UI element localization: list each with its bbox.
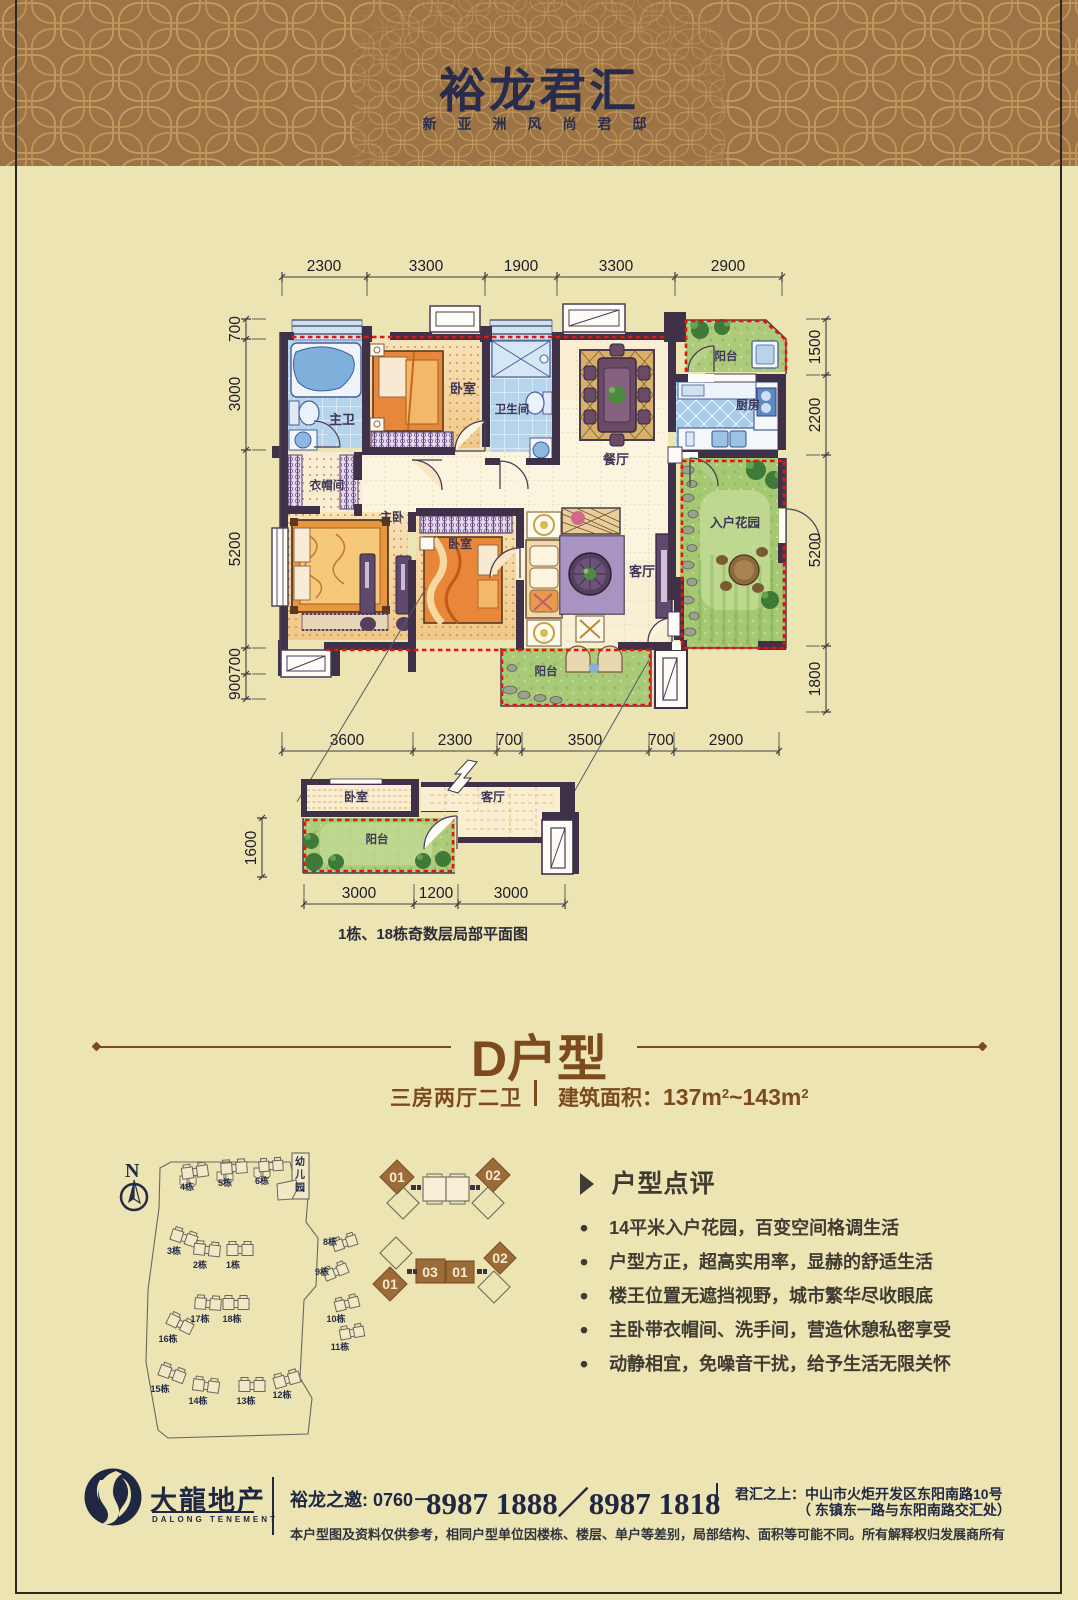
svg-text:1800: 1800: [807, 661, 824, 696]
svg-text:14栋: 14栋: [188, 1395, 207, 1406]
svg-text:1栋: 1栋: [226, 1259, 240, 1270]
svg-text:13栋: 13栋: [236, 1395, 255, 1406]
svg-text:厨房: 厨房: [736, 397, 760, 412]
svg-text:700: 700: [648, 732, 674, 749]
svg-text:18栋: 18栋: [222, 1313, 241, 1324]
svg-text:3000: 3000: [494, 885, 529, 902]
svg-text:卧室: 卧室: [448, 536, 472, 551]
svg-text:01: 01: [382, 1276, 398, 1292]
svg-text:5200: 5200: [227, 531, 244, 566]
svg-text:3000: 3000: [342, 885, 377, 902]
svg-text:2300: 2300: [438, 732, 473, 749]
svg-text:1600: 1600: [243, 830, 260, 865]
svg-text:01: 01: [389, 1169, 405, 1185]
svg-text:餐厅: 餐厅: [602, 452, 629, 467]
svg-text:5200: 5200: [807, 532, 824, 567]
svg-text:17栋: 17栋: [190, 1313, 209, 1324]
svg-text:4栋: 4栋: [180, 1181, 194, 1192]
svg-text:700: 700: [227, 316, 244, 342]
svg-text:阳台: 阳台: [366, 832, 389, 846]
svg-text:2900: 2900: [709, 732, 744, 749]
svg-text:10栋: 10栋: [326, 1313, 345, 1324]
svg-text:客厅: 客厅: [629, 564, 655, 579]
svg-text:主卫: 主卫: [329, 412, 355, 427]
svg-text:阳台: 阳台: [715, 349, 738, 363]
svg-text:1栋、18栋奇数层局部平面图: 1栋、18栋奇数层局部平面图: [338, 925, 528, 943]
svg-text:16栋: 16栋: [158, 1333, 177, 1344]
svg-text:客厅: 客厅: [480, 789, 505, 804]
svg-text:3300: 3300: [409, 258, 444, 275]
svg-text:阳台: 阳台: [535, 664, 558, 678]
svg-text:5栋: 5栋: [218, 1177, 232, 1188]
svg-text:2栋: 2栋: [193, 1259, 207, 1270]
svg-text:2300: 2300: [307, 258, 342, 275]
svg-text:儿: 儿: [294, 1169, 305, 1181]
svg-text:3600: 3600: [330, 732, 365, 749]
svg-text:1500: 1500: [807, 329, 824, 364]
svg-text:幼: 幼: [295, 1155, 305, 1168]
svg-text:卧室: 卧室: [450, 381, 476, 396]
svg-text:卫生间: 卫生间: [495, 402, 530, 416]
svg-text:700: 700: [227, 648, 244, 674]
svg-text:3000: 3000: [227, 376, 244, 411]
svg-text:1900: 1900: [504, 258, 539, 275]
svg-text:01: 01: [452, 1264, 468, 1280]
svg-text:N: N: [125, 1160, 140, 1182]
svg-text:3300: 3300: [599, 258, 634, 275]
svg-text:9栋: 9栋: [315, 1266, 329, 1277]
svg-text:6栋: 6栋: [255, 1175, 269, 1186]
svg-text:衣帽间: 衣帽间: [310, 478, 345, 492]
svg-text:2900: 2900: [711, 258, 746, 275]
svg-text:02: 02: [485, 1167, 501, 1183]
svg-text:3栋: 3栋: [167, 1245, 181, 1256]
svg-text:11栋: 11栋: [331, 1341, 350, 1352]
svg-text:15栋: 15栋: [150, 1383, 169, 1394]
svg-text:12栋: 12栋: [272, 1389, 291, 1400]
svg-text:主卧: 主卧: [380, 509, 404, 524]
svg-text:700: 700: [496, 732, 522, 749]
svg-text:入户花园: 入户花园: [710, 515, 760, 530]
svg-text:900: 900: [227, 674, 244, 700]
svg-text:03: 03: [422, 1264, 438, 1280]
svg-text:园: 园: [295, 1182, 305, 1194]
svg-text:1200: 1200: [419, 885, 454, 902]
svg-text:卧室: 卧室: [344, 789, 368, 804]
svg-text:8栋: 8栋: [323, 1236, 337, 1247]
svg-text:02: 02: [492, 1250, 508, 1266]
svg-text:2200: 2200: [807, 397, 824, 432]
svg-text:3500: 3500: [568, 732, 603, 749]
